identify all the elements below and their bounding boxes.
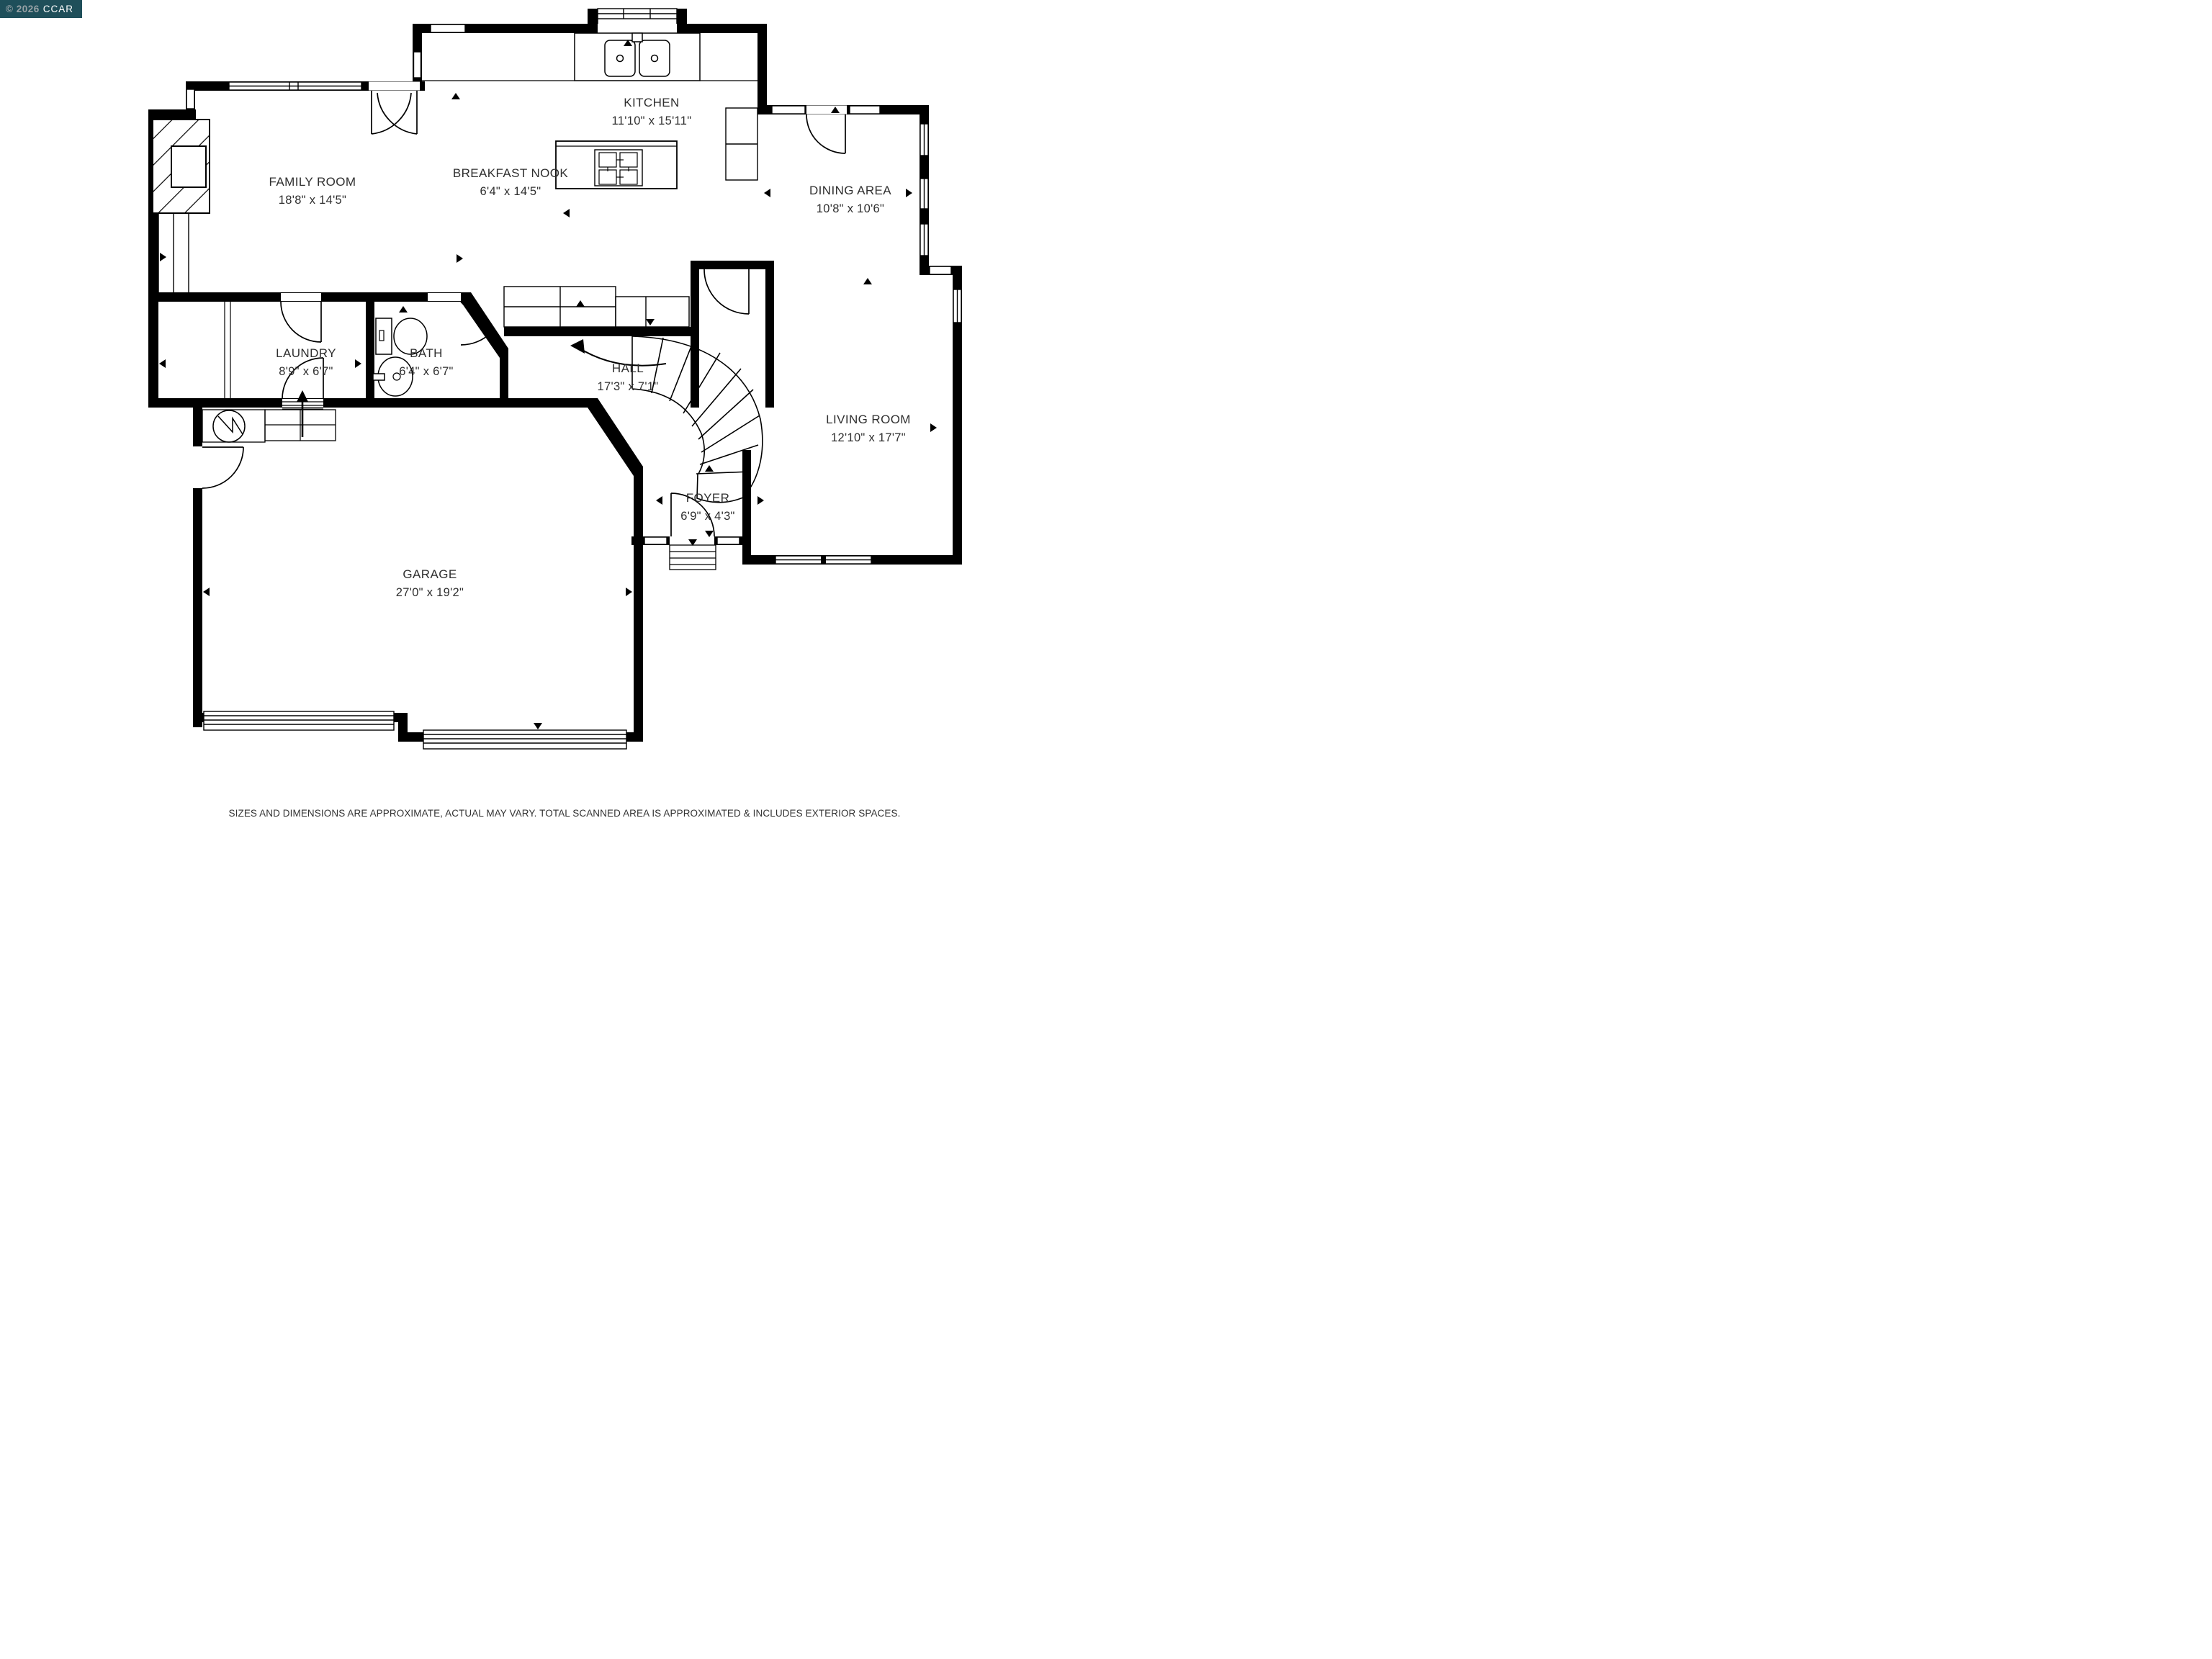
fireplace: [153, 120, 210, 299]
room-dimensions: 18'8" x 14'5": [269, 192, 356, 210]
kitchen-sink: [422, 33, 757, 81]
room-dimensions: 11'10" x 15'11": [612, 112, 692, 130]
room-label-bath: BATH 6'4" x 6'7": [399, 344, 453, 381]
room-dimensions: 8'9" x 6'7": [276, 363, 336, 381]
room-name: HALL: [598, 359, 659, 378]
room-name: GARAGE: [396, 565, 464, 584]
room-label-family-room: FAMILY ROOM 18'8" x 14'5": [269, 173, 356, 210]
room-label-garage: GARAGE 27'0" x 19'2": [396, 565, 464, 602]
room-dimensions: 6'4" x 6'7": [399, 363, 453, 381]
floor-plan-page: FAMILY ROOM 18'8" x 14'5" KITCHEN 11'10"…: [0, 0, 1129, 847]
room-label-breakfast-nook: BREAKFAST NOOK 6'4" x 14'5": [453, 164, 568, 201]
room-name: LAUNDRY: [276, 344, 336, 363]
refrigerator: [726, 108, 757, 180]
garage-door-left: [204, 711, 394, 730]
room-dimensions: 17'3" x 7'1": [598, 378, 659, 396]
copyright-year: © 2026: [6, 4, 40, 14]
hall-counters: [504, 287, 689, 327]
direction-markers: [159, 40, 937, 729]
room-name: BATH: [399, 344, 453, 363]
porch-steps: [670, 545, 716, 570]
room-dimensions: 12'10" x 17'7": [826, 429, 911, 447]
room-name: DINING AREA: [809, 181, 891, 200]
room-label-hall: HALL 17'3" x 7'1": [598, 359, 659, 396]
room-name: LIVING ROOM: [826, 410, 911, 429]
room-label-dining-area: DINING AREA 10'8" x 10'6": [809, 181, 891, 218]
disclaimer-text: SIZES AND DIMENSIONS ARE APPROXIMATE, AC…: [0, 808, 1129, 819]
room-dimensions: 6'4" x 14'5": [453, 183, 568, 201]
island-cooktop: [556, 141, 677, 189]
copyright-org: CCAR: [43, 4, 73, 14]
room-label-kitchen: KITCHEN 11'10" x 15'11": [612, 94, 692, 130]
walls: [148, 9, 962, 742]
copyright-badge: © 2026 CCAR: [0, 0, 82, 18]
room-label-living-room: LIVING ROOM 12'10" x 17'7": [826, 410, 911, 447]
room-name: BREAKFAST NOOK: [453, 164, 568, 183]
floor-plan-drawing: [0, 0, 1129, 847]
room-dimensions: 10'8" x 10'6": [809, 200, 891, 218]
water-heater: [202, 410, 336, 442]
room-label-laundry: LAUNDRY 8'9" x 6'7": [276, 344, 336, 381]
room-name: FOYER: [680, 489, 734, 508]
laundry-closet: [225, 302, 230, 398]
room-name: KITCHEN: [612, 94, 692, 112]
garage-steps: [282, 390, 323, 437]
room-dimensions: 27'0" x 19'2": [396, 584, 464, 602]
room-name: FAMILY ROOM: [269, 173, 356, 192]
garage-door-right: [423, 730, 626, 749]
window-mullion: [821, 555, 826, 565]
room-label-foyer: FOYER 6'9" x 4'3": [680, 489, 734, 526]
room-dimensions: 6'9" x 4'3": [680, 508, 734, 526]
